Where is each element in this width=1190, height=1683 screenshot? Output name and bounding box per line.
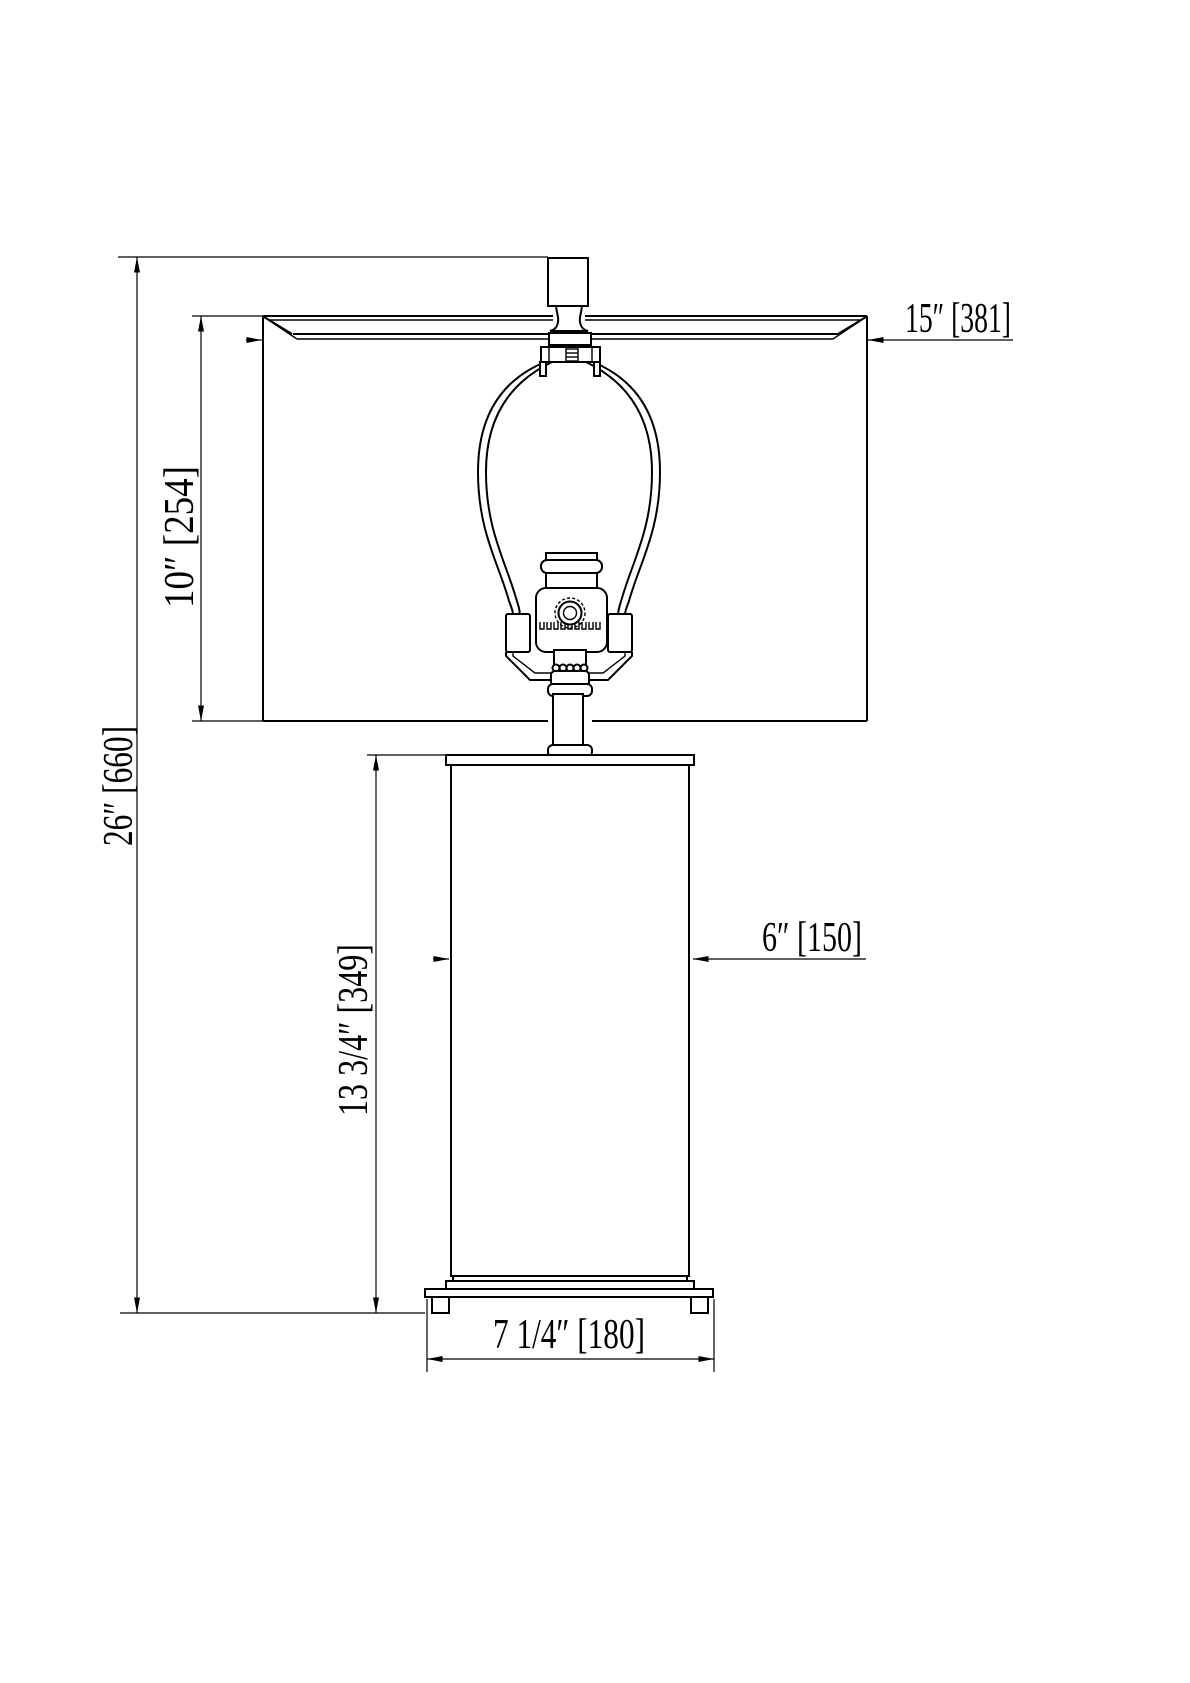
dim-label-overall-height: 26″ [660] <box>96 726 142 846</box>
base-foot-left <box>432 1297 449 1313</box>
base-plate <box>425 1289 713 1297</box>
socket-switch-knob <box>559 602 582 625</box>
dimension-shade-height: 10″ [254] <box>157 316 263 721</box>
dimension-base-width: 7 1/4″ [180] <box>427 1299 714 1372</box>
dim-label-body-height: 13 3/4″ [349] <box>331 944 377 1116</box>
dim-label-body-width: 6″ [150] <box>762 915 862 961</box>
socket-cap-ring <box>541 560 602 573</box>
technical-drawing-svg: 26″ [660] 10″ [254] 15″ [381] 6″ [150] 1… <box>0 0 1190 1683</box>
drawing-canvas: 26″ [660] 10″ [254] 15″ [381] 6″ [150] 1… <box>0 0 1190 1683</box>
base-foot-right <box>691 1297 708 1313</box>
finial <box>548 258 588 306</box>
socket <box>536 553 607 686</box>
harp-ferrule-right <box>608 614 632 652</box>
dimension-body-height: 13 3/4″ [349] <box>331 755 446 1313</box>
harp-ferrule-left <box>506 614 530 652</box>
dimension-shade-width: 15″ [381] <box>246 296 1013 342</box>
harp-wire-left-outer <box>478 362 545 616</box>
dim-label-shade-height: 10″ [254] <box>157 466 203 608</box>
harp-wire-right-outer <box>593 362 660 616</box>
body-plate-bottom <box>446 1281 694 1289</box>
dim-label-shade-width: 15″ [381] <box>905 296 1011 342</box>
lamp-body <box>446 755 694 1289</box>
finial-neck <box>550 306 588 331</box>
lamp-base <box>425 1289 713 1313</box>
dim-label-base-width: 7 1/4″ [180] <box>493 1312 645 1358</box>
harp-saddle <box>549 333 591 345</box>
harp-bracket-tab-left <box>540 362 546 376</box>
neck-tube <box>553 694 583 747</box>
body-cylinder <box>451 765 689 1276</box>
body-plate-top <box>446 755 694 765</box>
harp-bracket-tab-right <box>594 362 600 376</box>
neck <box>548 684 592 757</box>
